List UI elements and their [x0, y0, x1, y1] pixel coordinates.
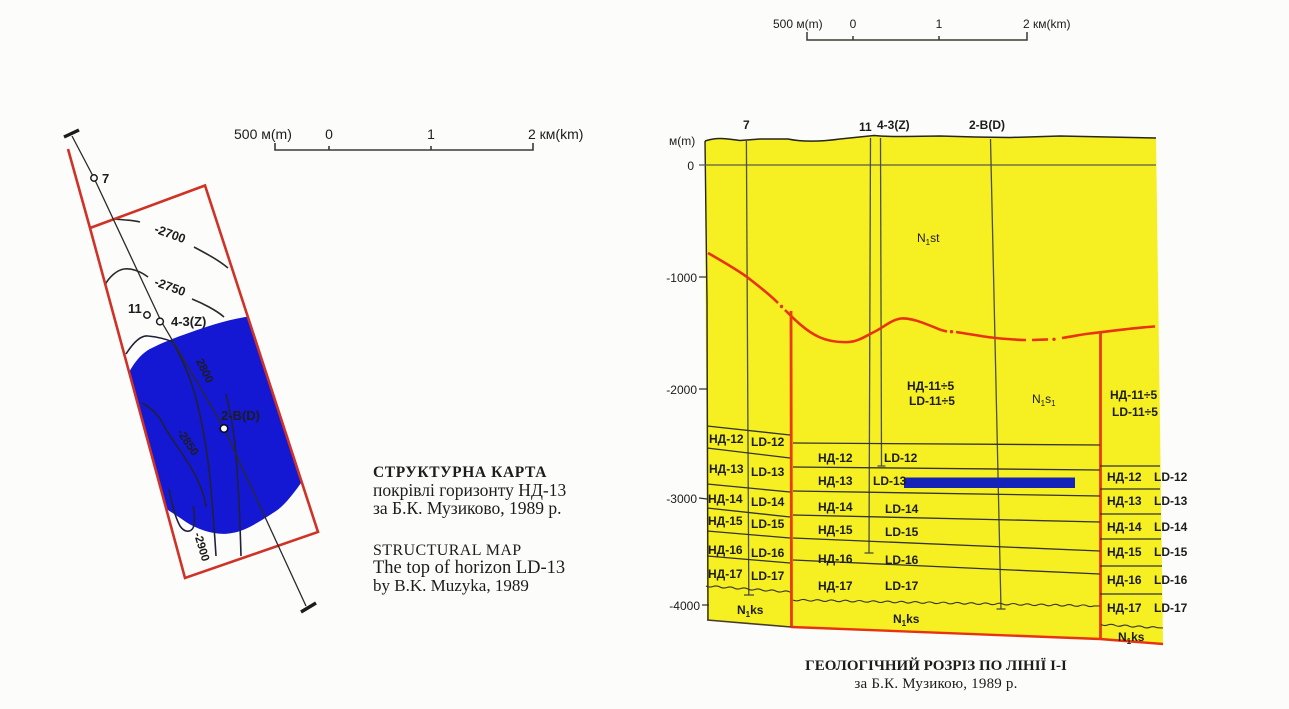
svg-text:-1000: -1000	[666, 271, 697, 285]
svg-text:500 м(m): 500 м(m)	[773, 17, 823, 31]
svg-text:НД-14: НД-14	[1107, 520, 1142, 534]
svg-text:LD-13: LD-13	[1154, 494, 1188, 508]
svg-text:LD-11÷5: LD-11÷5	[1112, 405, 1158, 419]
svg-text:НД-17: НД-17	[1107, 601, 1142, 615]
svg-text:НД-11÷5: НД-11÷5	[1110, 388, 1157, 402]
svg-text:1: 1	[936, 17, 943, 31]
svg-text:2 км(km): 2 км(km)	[528, 126, 583, 142]
svg-text:НД-14: НД-14	[708, 492, 743, 506]
svg-text:LD-12: LD-12	[1154, 470, 1188, 484]
svg-text:7: 7	[102, 171, 109, 186]
svg-text:N1ks: N1ks	[737, 603, 764, 619]
svg-text:7: 7	[743, 118, 750, 132]
svg-text:ГЕОЛОГІЧНИЙ РОЗРІЗ ПО ЛІНІЇ І-: ГЕОЛОГІЧНИЙ РОЗРІЗ ПО ЛІНІЇ І-І	[805, 657, 1067, 674]
svg-text:LD-15: LD-15	[885, 525, 919, 539]
svg-text:НД-15: НД-15	[708, 514, 743, 528]
svg-text:N1ks: N1ks	[893, 612, 920, 628]
svg-text:2 км(km): 2 км(km)	[1023, 17, 1071, 31]
svg-text:N1ks: N1ks	[1118, 630, 1145, 646]
svg-text:LD-16: LD-16	[885, 553, 919, 567]
svg-text:2-B(D): 2-B(D)	[969, 118, 1005, 132]
svg-text:НД-17: НД-17	[708, 567, 743, 581]
svg-text:НД-14: НД-14	[818, 500, 853, 514]
svg-text:LD-16: LD-16	[751, 546, 785, 560]
svg-text:4-3(Z): 4-3(Z)	[877, 118, 910, 132]
svg-text:LD-13: LD-13	[873, 474, 907, 488]
svg-text:СТРУКТУРНА КАРТА: СТРУКТУРНА КАРТА	[373, 464, 547, 481]
svg-text:LD-17: LD-17	[1154, 601, 1188, 615]
svg-text:LD-15: LD-15	[751, 517, 785, 531]
svg-text:LD-17: LD-17	[751, 569, 785, 583]
svg-text:LD-11÷5: LD-11÷5	[909, 394, 955, 408]
svg-text:покрівлі горизонту НД-13: покрівлі горизонту НД-13	[373, 480, 566, 500]
svg-text:НД-12: НД-12	[818, 451, 853, 465]
svg-text:НД-12: НД-12	[1107, 470, 1142, 484]
svg-text:-4000: -4000	[669, 599, 700, 613]
svg-text:1: 1	[427, 126, 435, 142]
svg-text:0: 0	[850, 17, 857, 31]
svg-text:НД-16: НД-16	[818, 552, 853, 566]
svg-text:НД-16: НД-16	[1107, 573, 1142, 587]
svg-text:-3000: -3000	[666, 492, 697, 506]
svg-text:0: 0	[687, 159, 694, 173]
svg-text:за Б.К. Музиково, 1989 р.: за Б.К. Музиково, 1989 р.	[373, 498, 562, 518]
svg-text:НД-15: НД-15	[1107, 545, 1142, 559]
svg-text:за Б.К. Музикою, 1989 р.: за Б.К. Музикою, 1989 р.	[854, 676, 1017, 692]
svg-text:11: 11	[128, 301, 142, 316]
svg-text:НД-12: НД-12	[709, 432, 744, 446]
svg-text:-2000: -2000	[666, 383, 697, 397]
svg-text:НД-13: НД-13	[1107, 494, 1142, 508]
svg-text:LD-14: LD-14	[751, 495, 785, 509]
svg-text:LD-13: LD-13	[751, 465, 785, 479]
svg-text:LD-15: LD-15	[1154, 545, 1188, 559]
svg-text:НД-13: НД-13	[818, 474, 853, 488]
svg-text:0: 0	[325, 126, 333, 142]
svg-text:м(m): м(m)	[669, 134, 695, 148]
svg-text:LD-14: LD-14	[885, 502, 919, 516]
svg-text:by B.K. Muzyka, 1989: by B.K. Muzyka, 1989	[373, 576, 529, 595]
svg-text:LD-12: LD-12	[751, 435, 785, 449]
svg-text:НД-16: НД-16	[708, 543, 743, 557]
svg-text:500 м(m): 500 м(m)	[234, 126, 292, 142]
svg-text:НД-11÷5: НД-11÷5	[907, 379, 954, 393]
svg-text:НД-17: НД-17	[818, 579, 853, 593]
svg-text:LD-17: LD-17	[885, 579, 919, 593]
svg-text:НД-15: НД-15	[818, 523, 853, 537]
svg-text:The top of horizon LD-13: The top of horizon LD-13	[373, 558, 565, 578]
svg-text:НД-13: НД-13	[709, 462, 744, 476]
svg-text:2-B(D): 2-B(D)	[221, 408, 260, 423]
svg-text:11: 11	[859, 120, 872, 134]
svg-text:LD-14: LD-14	[1154, 520, 1188, 534]
svg-text:LD-16: LD-16	[1154, 573, 1188, 587]
svg-text:LD-12: LD-12	[884, 451, 918, 465]
svg-text:STRUCTURAL MAP: STRUCTURAL MAP	[373, 542, 522, 559]
svg-text:4-3(Z): 4-3(Z)	[171, 314, 206, 329]
